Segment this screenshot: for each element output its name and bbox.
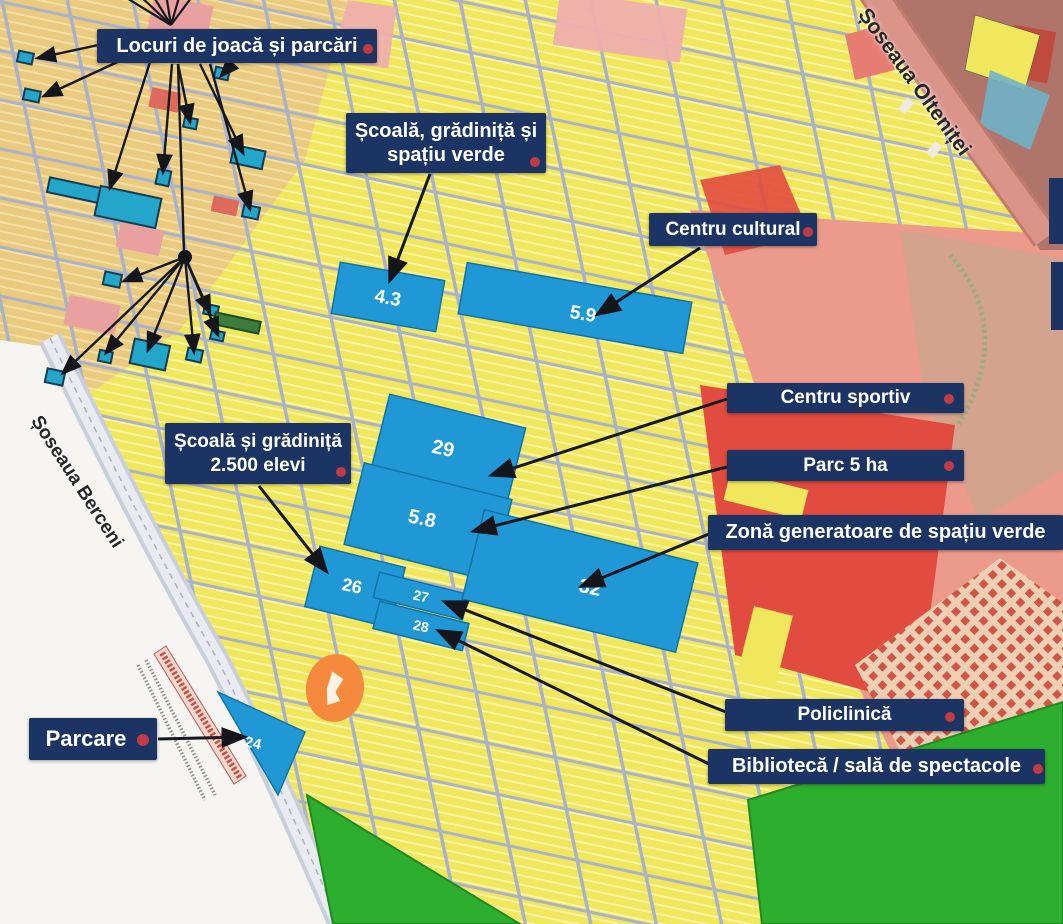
label-school: Școală și grădiniță 2.500 elevi: [165, 423, 351, 484]
marker-dot: [945, 712, 955, 722]
parcel-29-label: 29: [430, 436, 456, 462]
clipped-label-2: [1051, 262, 1063, 330]
label-school-line1: Școală și grădiniță: [174, 430, 342, 453]
label-park: Parc 5 ha: [727, 450, 964, 481]
label-sports: Centru sportiv: [727, 383, 964, 413]
label-school-line2: 2.500 elevi: [210, 454, 305, 477]
label-cultural-text: Centru cultural: [665, 218, 800, 241]
marker-dot: [336, 467, 346, 477]
label-parking-text: Parcare: [46, 726, 141, 753]
marker-dot: [944, 394, 954, 404]
label-sports-text: Centru sportiv: [781, 386, 911, 409]
marker-dot: [137, 734, 149, 746]
label-green-zone: Zonă generatoare de spațiu verde: [708, 515, 1063, 550]
clipped-label-1: [1049, 178, 1063, 244]
marker-dot: [803, 227, 813, 237]
label-polyclinic-text: Policlinică: [798, 703, 892, 726]
label-school-green: Școală, grădiniță și spațiu verde: [346, 113, 546, 173]
urban-plan-map: 4.3 5.9 29 5.8 26 27 28 32 24: [0, 0, 1063, 924]
label-library-text: Bibliotecă / sală de spectacole: [732, 754, 1021, 778]
marker-dot: [530, 157, 540, 167]
label-school-green-line2: spațiu verde: [387, 143, 505, 167]
label-polyclinic: Policlinică: [725, 699, 964, 731]
label-library: Bibliotecă / sală de spectacole: [708, 749, 1045, 784]
marker-dot: [1033, 764, 1043, 774]
label-playgrounds-text: Locuri de joacă și parcări: [116, 34, 357, 58]
parcel-26-label: 26: [340, 574, 364, 598]
marker-dot: [363, 44, 373, 54]
label-parking: Parcare: [29, 718, 157, 760]
label-playgrounds: Locuri de joacă și parcări: [97, 29, 377, 63]
label-park-text: Parc 5 ha: [803, 454, 888, 477]
arrow-parking: [158, 737, 244, 739]
marker-dot: [944, 461, 954, 471]
label-school-green-line1: Școală, grădiniță și: [355, 119, 537, 143]
label-green-zone-text: Zonă generatoare de spațiu verde: [725, 520, 1045, 544]
label-cultural: Centru cultural: [649, 213, 817, 246]
